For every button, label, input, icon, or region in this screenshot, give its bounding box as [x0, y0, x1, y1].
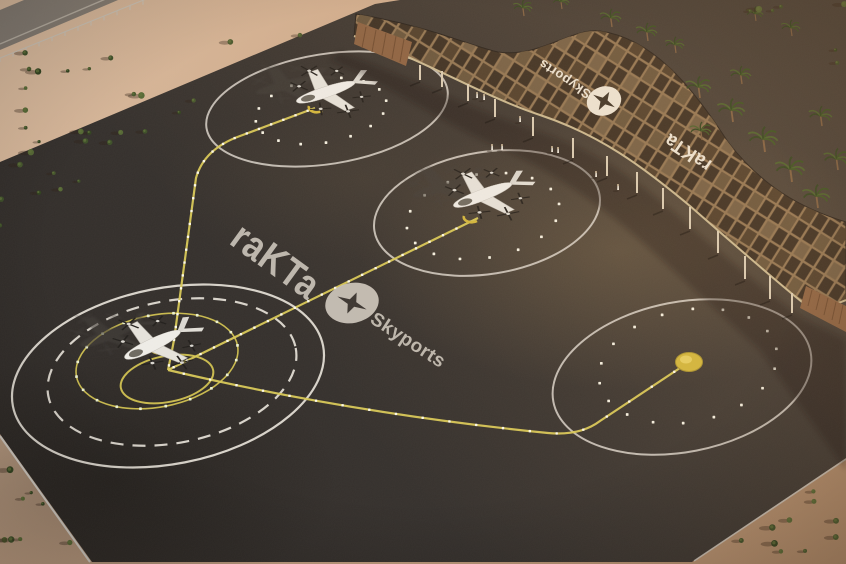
vertiport-render: raKTa Skyports Skyports [0, 0, 846, 564]
vignette [0, 0, 846, 564]
scene-canvas: raKTa Skyports Skyports [0, 0, 846, 564]
